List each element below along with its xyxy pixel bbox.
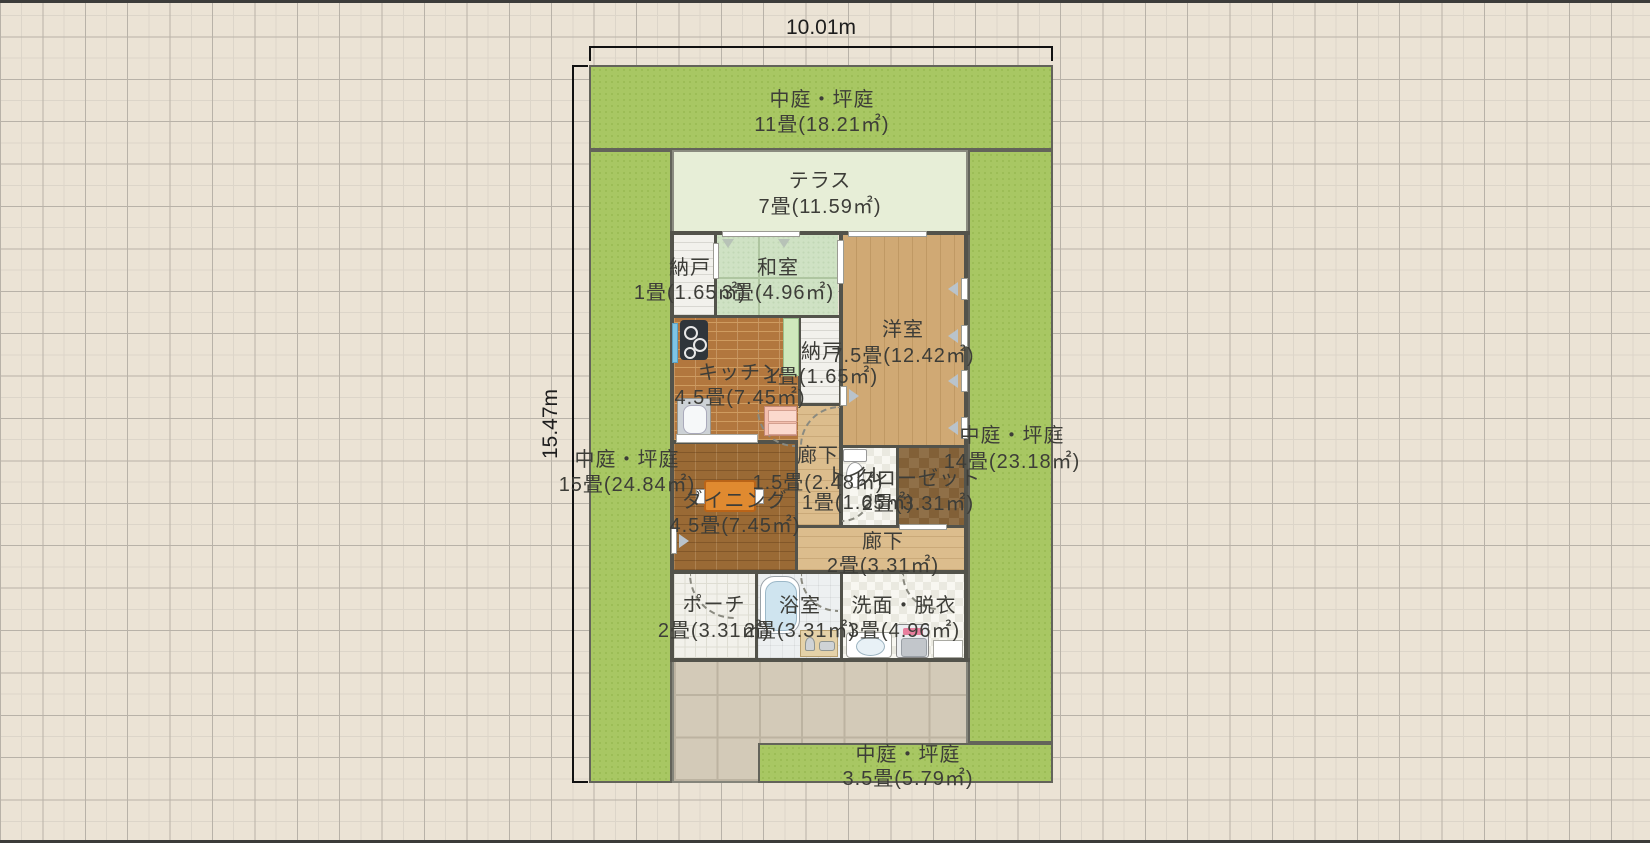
wall-under-washitsu [674,315,842,318]
dimension-tick-left-bottom [572,781,588,783]
room-label-niwa-top-area: 11畳(18.21㎡) [754,115,889,135]
room-label-closet-name: クローゼット [855,469,981,489]
room-label-youshitsu-name: 洋室 [882,320,924,340]
room-label-niwa-left-name: 中庭・坪庭 [575,450,680,470]
room-label-washroom-name: 洗面・脱衣 [852,596,957,616]
floor-plan-canvas[interactable]: 10.01m 15.47m 中庭・坪庭11畳(18.21㎡)テラス7畳(11.5… [0,0,1650,843]
toilet-fixture[interactable] [843,449,867,462]
room-label-bath-area: 2畳(3.31㎡) [744,621,856,641]
room-label-dining-area: 4.5畳(7.45㎡) [669,516,800,536]
wall-bath-right [840,574,843,658]
door-swing-mark-washitsu-1 [722,239,734,248]
room-label-niwa-right-name: 中庭・坪庭 [960,426,1065,446]
room-label-terrace-name: テラス [789,171,852,191]
room-label-corridor-2-name: 廊下 [862,532,904,552]
window-mark-youshitsu-1 [948,282,958,296]
dimension-width-label: 10.01m [786,16,856,40]
room-label-nando-2-area: 1畳(1.65㎡) [766,367,878,387]
room-label-niwa-bottom-name: 中庭・坪庭 [856,745,961,765]
window-mark-youshitsu-3 [948,374,958,388]
room-label-kitchen-name: キッチン [698,363,782,383]
room-label-washitsu-name: 和室 [757,258,799,278]
dimension-line-left [572,65,574,783]
room-label-youshitsu-area: 7.5畳(12.42㎡) [831,346,974,366]
room-label-bath-name: 浴室 [779,596,821,616]
room-label-closet-area: 2畳(3.31㎡) [862,494,974,514]
room-label-washroom-area: 3畳(4.96㎡) [848,621,960,641]
room-label-washitsu-area: 3畳(4.96㎡) [722,283,834,303]
room-label-corridor-1-name: 廊下 [797,446,839,466]
wall-youshitsu-bottom [842,445,964,448]
room-label-niwa-left-area: 15畳(24.84㎡) [559,475,696,495]
sliding-door-closet[interactable] [899,524,947,530]
room-label-terrace-area: 7畳(11.59㎡) [758,197,881,217]
wall-porch-right [755,574,758,658]
window-terrace-right[interactable] [848,231,927,237]
dimension-height-label: 15.47m [539,389,563,459]
window-mark-youshitsu-4 [948,421,958,435]
terrace-area[interactable] [672,150,968,235]
top-edge-bar [0,0,1650,3]
window-terrace-left[interactable] [722,231,800,237]
room-label-niwa-top-name: 中庭・坪庭 [770,90,875,110]
room-label-nando-2-name: 納戸 [801,342,843,362]
sliding-door-washitsu[interactable] [837,240,844,284]
room-label-corridor-2-area: 2畳(3.31㎡) [827,556,939,576]
door-youshitsu[interactable] [840,386,847,406]
window-mark-youshitsu-2 [948,329,958,343]
door-swing-mark-washitsu-2 [778,239,790,248]
window-youshitsu-2[interactable] [961,325,968,347]
room-label-niwa-bottom-area: 3.5畳(5.79㎡) [842,769,973,789]
room-label-kitchen-area: 4.5畳(7.45㎡) [674,388,805,408]
stove-fixture[interactable] [680,320,708,360]
wall-house-bottom [670,658,970,662]
window-kitchen[interactable] [672,323,678,363]
dimension-line-top [589,46,1053,48]
dimension-tick-top-right [1051,46,1053,61]
dimension-tick-top-left [589,46,591,61]
washroom-counter[interactable] [933,640,963,658]
kitchen-counter[interactable] [676,434,758,443]
sliding-door-nando-1[interactable] [713,243,719,279]
door-mark-youshitsu [849,389,859,403]
room-label-dining-name: ダイニング [683,491,788,511]
room-label-nando-1-name: 納戸 [669,258,711,278]
window-youshitsu-3[interactable] [961,370,968,392]
dimension-tick-left-top [572,65,588,67]
room-label-porch-name: ポーチ [683,595,746,615]
refrigerator[interactable] [764,406,797,436]
window-youshitsu-1[interactable] [961,278,968,300]
